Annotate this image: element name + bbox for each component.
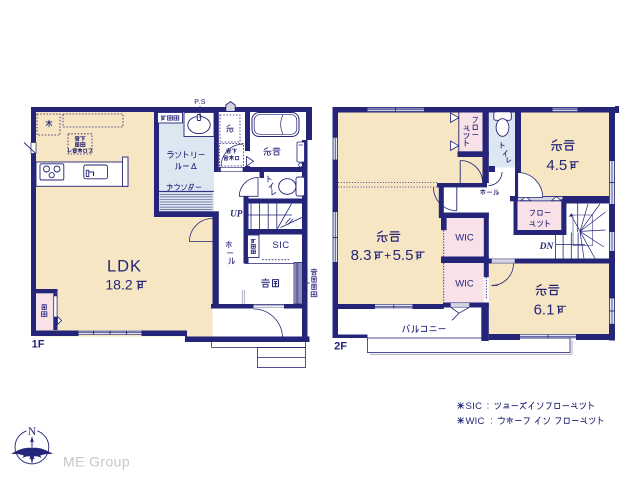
svg-text:WIC: WIC <box>455 233 474 244</box>
svg-text:WIC: WIC <box>455 279 474 290</box>
svg-text:UP: UP <box>230 209 243 219</box>
svg-text::: : <box>490 415 493 426</box>
svg-text:4.5: 4.5 <box>546 157 567 174</box>
svg-text:6.1: 6.1 <box>534 302 555 319</box>
svg-text:WIC: WIC <box>466 416 485 427</box>
svg-text:8.3: 8.3 <box>351 247 372 264</box>
svg-text:2F: 2F <box>334 341 347 353</box>
svg-text:18.2: 18.2 <box>105 277 132 293</box>
svg-text:P.S: P.S <box>194 99 206 106</box>
svg-text:ME Group: ME Group <box>63 454 130 470</box>
svg-text:SIC: SIC <box>272 240 289 251</box>
svg-text:SIC: SIC <box>466 401 483 412</box>
svg-text:5.5: 5.5 <box>393 247 414 264</box>
svg-text:LDK: LDK <box>107 258 142 276</box>
svg-text:N: N <box>28 426 37 438</box>
svg-text:DN: DN <box>539 242 555 252</box>
svg-text:1F: 1F <box>32 339 45 351</box>
svg-text::: : <box>487 401 490 412</box>
svg-text:+: + <box>384 249 391 263</box>
